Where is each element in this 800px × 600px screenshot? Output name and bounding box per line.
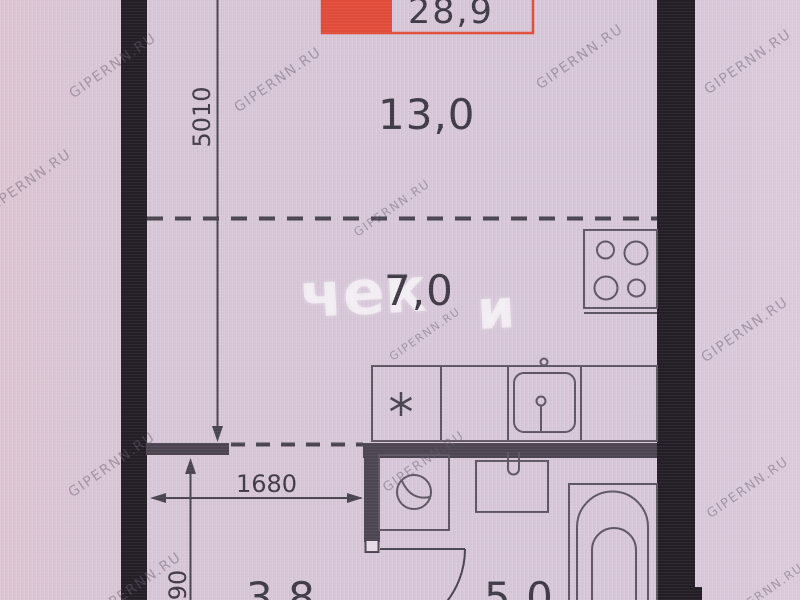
floor-plan-photo: чек и 28,9 13,0 7,0 3,8 5,0 5010 1680 90… xyxy=(0,0,800,600)
site-watermark: GIPERNN.RU xyxy=(698,294,791,366)
site-watermark: GIPERNN.RU xyxy=(91,549,184,600)
site-watermark: GIPERNN.RU xyxy=(387,305,463,364)
site-watermark: GIPERNN.RU xyxy=(231,44,324,116)
site-watermark: GIPERNN.RU xyxy=(65,429,158,501)
site-watermark: GIPERNN.RU xyxy=(0,146,75,218)
site-watermark: GIPERNN.RU xyxy=(701,26,794,98)
site-watermark: GIPERNN.RU xyxy=(66,30,159,102)
watermark-layer: GIPERNN.RUGIPERNN.RUGIPERNN.RUGIPERNN.RU… xyxy=(0,0,800,600)
site-watermark: GIPERNN.RU xyxy=(724,560,800,600)
site-watermark: GIPERNN.RU xyxy=(704,454,791,521)
site-watermark: GIPERNN.RU xyxy=(351,176,433,239)
site-watermark: GIPERNN.RU xyxy=(533,21,626,93)
site-watermark: GIPERNN.RU xyxy=(380,428,467,495)
